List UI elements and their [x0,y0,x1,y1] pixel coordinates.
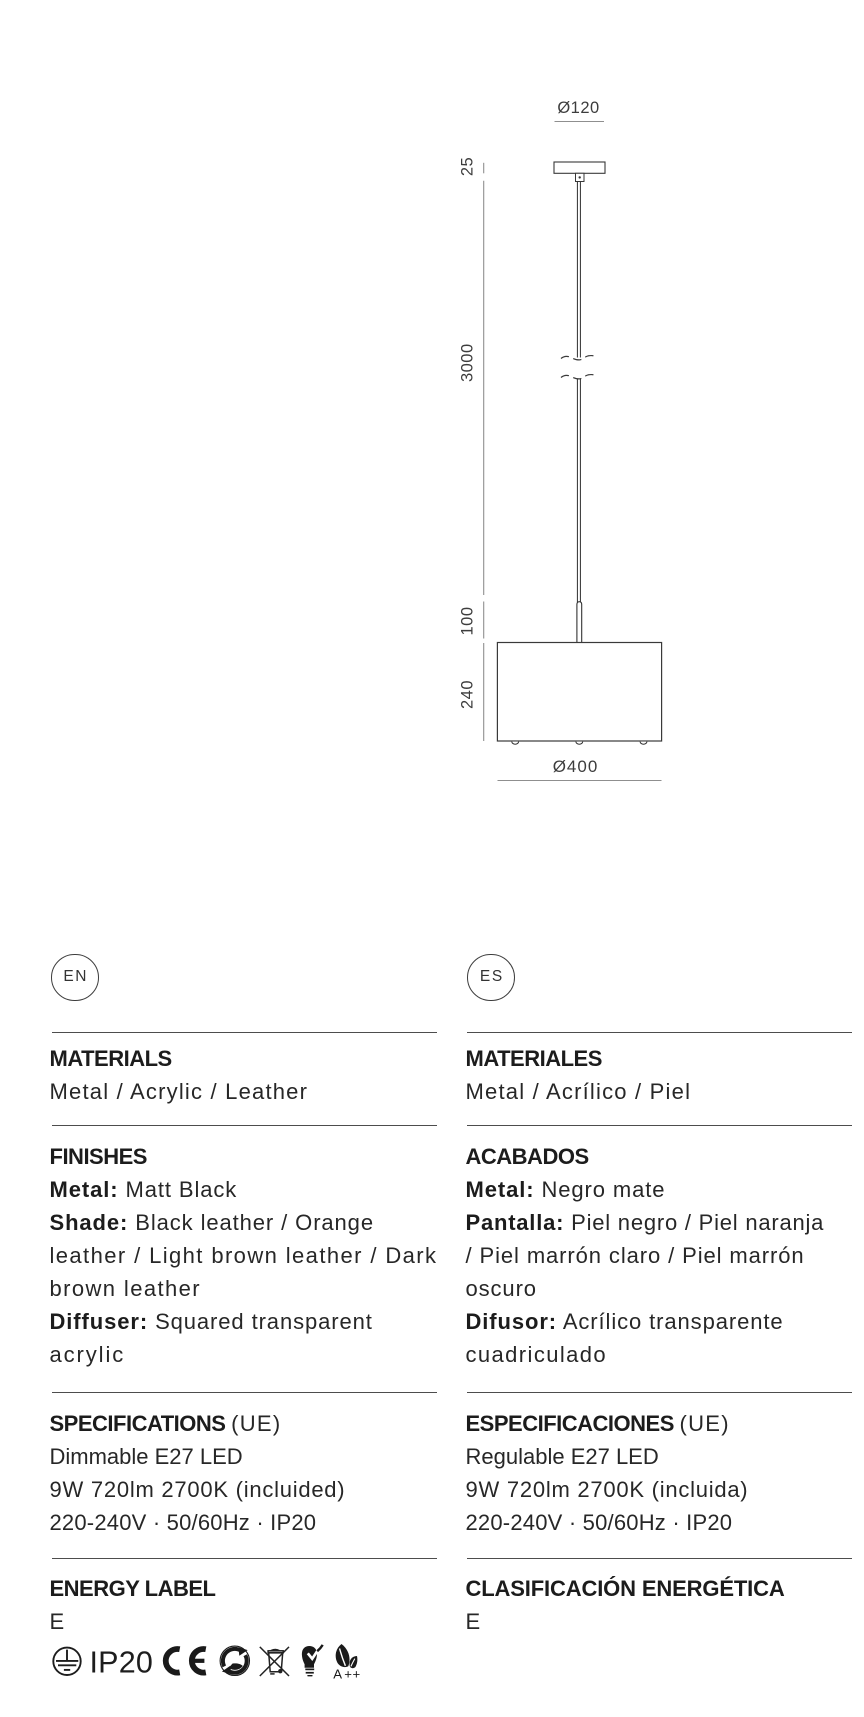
svg-text:3000: 3000 [459,343,477,382]
svg-text:25: 25 [459,157,477,176]
svg-text:IP20: IP20 [90,1645,154,1679]
svg-text:A: A [333,1667,342,1682]
svg-text:++: ++ [344,1667,361,1682]
svg-text:240: 240 [459,680,477,709]
svg-text:100: 100 [459,606,477,635]
svg-text:Ø120: Ø120 [557,99,599,117]
svg-text:Ø400: Ø400 [553,757,599,776]
